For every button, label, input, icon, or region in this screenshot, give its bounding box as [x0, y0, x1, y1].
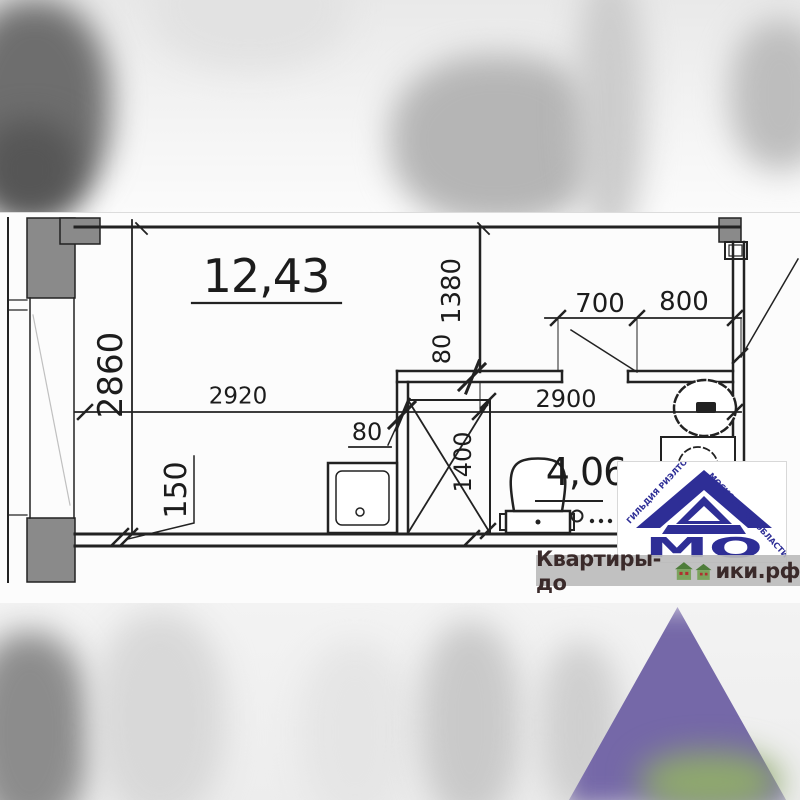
dim-wall-80-left: 80 [352, 420, 383, 444]
site-watermark: Квартиры-до ики.рф [536, 555, 800, 586]
area-label-bath: 4,06 [546, 453, 627, 491]
dim-main-width: 2920 [209, 386, 268, 409]
dim-inner-height: 1380 [439, 258, 465, 324]
house-icons [675, 560, 714, 582]
drain-symbol [572, 511, 613, 524]
floorplan-image: 12,43 4,06 2860 2920 2900 1380 80 80 700… [0, 0, 800, 800]
shower-tray [328, 463, 397, 533]
dim-shaft-1400: 1400 [451, 431, 475, 492]
watermark-suffix: ики.рф [715, 559, 800, 583]
bath-door-swing [571, 330, 637, 372]
dim-entry-800: 800 [659, 289, 709, 315]
wall-sink [674, 380, 736, 436]
dim-wall-80-top: 80 [430, 334, 454, 365]
dim-door-700: 700 [575, 291, 625, 317]
dim-right-width: 2900 [535, 387, 596, 411]
entry-door-swing [741, 259, 798, 357]
dim-left-height: 2860 [94, 332, 128, 419]
area-label-main: 12,43 [203, 253, 330, 299]
dim-ledge-150: 150 [162, 461, 192, 518]
watermark-prefix: Квартиры-до [536, 547, 674, 595]
